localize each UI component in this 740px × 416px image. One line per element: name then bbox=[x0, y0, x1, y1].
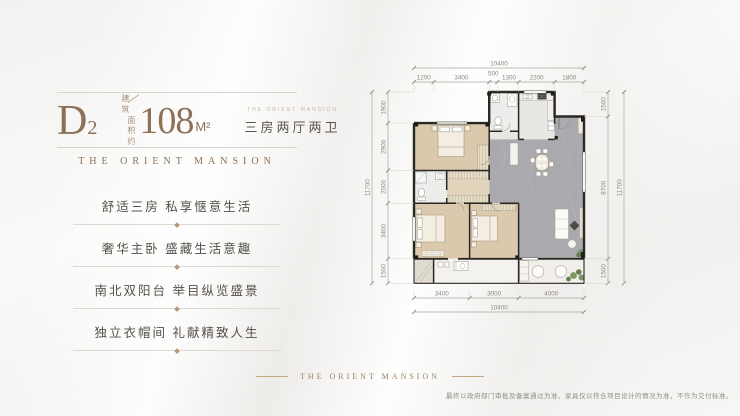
unit-code-number: 2 bbox=[87, 117, 97, 139]
area-value: 108 bbox=[139, 102, 193, 140]
selling-points: 舒适三房 私享惬意生活 奢华主卧 盛藏生活意趣 南北双阳台 举目纵览盛景 独立衣… bbox=[67, 196, 287, 364]
dim-left-4: 3400 bbox=[381, 224, 388, 239]
area-label-line2: 面积约 bbox=[121, 116, 136, 148]
dim-top-4: 1300 bbox=[502, 75, 517, 82]
area-label: 建筑 面积约 bbox=[121, 94, 136, 148]
layout-type-badge: THE ORIENT MANSION 三房两厅两卫 bbox=[245, 107, 341, 136]
dim-left-1: 1900 bbox=[381, 100, 388, 115]
dim-top-3: 500 bbox=[488, 71, 499, 78]
plan-header: D2 建筑 面积约 108 M² THE ORIENT MANSION 三房两厅… bbox=[57, 96, 301, 146]
dimension-top: 10400 1200 3400 500 1300 2200 1800 bbox=[412, 61, 586, 93]
floor-plan: 10400 1200 3400 500 1300 2200 1800 11700… bbox=[352, 52, 648, 328]
dim-top-5: 2200 bbox=[530, 75, 545, 82]
dim-top-total: 10400 bbox=[490, 61, 508, 68]
selling-point: 独立衣帽间 礼献精致人生 bbox=[67, 322, 287, 341]
footer-line-left bbox=[256, 376, 288, 377]
dim-left-5: 1500 bbox=[381, 264, 388, 279]
unit-code: D2 bbox=[57, 100, 97, 142]
walkin-closet-wardrobe2 bbox=[447, 196, 488, 203]
dim-right-1: 1500 bbox=[601, 97, 608, 112]
header-top-rule bbox=[57, 92, 297, 93]
footer-brand-text: THE ORIENT MANSION bbox=[300, 372, 440, 381]
selling-point: 南北双阳台 举目纵览盛景 bbox=[67, 280, 287, 299]
dim-top-1: 1200 bbox=[417, 75, 432, 82]
master-window bbox=[413, 217, 415, 241]
living-window bbox=[583, 152, 585, 192]
hall-cabinet bbox=[510, 143, 518, 165]
dim-bottom-total: 10400 bbox=[490, 305, 508, 312]
dimension-left: 11700 1900 2900 2000 3400 1500 bbox=[365, 90, 415, 285]
dim-top-6: 1800 bbox=[562, 75, 577, 82]
dim-left-2: 2900 bbox=[381, 139, 388, 154]
point-divider bbox=[73, 308, 281, 309]
dim-right-3: 1500 bbox=[601, 264, 608, 279]
dim-top-2: 3400 bbox=[454, 75, 469, 82]
point-divider bbox=[73, 266, 281, 267]
footer-brand: THE ORIENT MANSION bbox=[0, 372, 740, 381]
poster-canvas: D2 建筑 面积约 108 M² THE ORIENT MANSION 三房两厅… bbox=[0, 0, 740, 416]
dimension-right: 1500 8700 1500 11700 bbox=[584, 90, 626, 285]
badge-caption: THE ORIENT MANSION bbox=[247, 107, 338, 113]
dim-right-2: 8700 bbox=[601, 180, 608, 195]
dimension-bottom: 3400 3000 4000 10400 bbox=[412, 290, 586, 314]
kitchen-window bbox=[524, 91, 546, 93]
dim-bottom-2: 3000 bbox=[487, 291, 502, 298]
area-unit: M² bbox=[195, 119, 210, 134]
selling-point: 舒适三房 私享惬意生活 bbox=[67, 196, 287, 215]
selling-point: 奢华主卧 盛藏生活意趣 bbox=[67, 238, 287, 257]
brand-title: THE ORIENT MANSION bbox=[47, 156, 307, 167]
point-divider bbox=[73, 350, 281, 351]
area-label-line1: 建筑 bbox=[121, 94, 130, 114]
badge-text: 三房两厅两卫 bbox=[245, 117, 341, 136]
dim-left-3: 2000 bbox=[381, 179, 388, 194]
dim-left-total: 11700 bbox=[365, 179, 372, 197]
footer-line-right bbox=[452, 376, 484, 377]
bath-threshold bbox=[489, 131, 518, 139]
balcony-slider bbox=[522, 258, 538, 260]
dim-bottom-1: 3400 bbox=[435, 291, 450, 298]
point-divider bbox=[73, 224, 281, 225]
dim-bottom-3: 4000 bbox=[544, 291, 559, 298]
walkin-closet-wardrobe bbox=[447, 171, 488, 179]
unit-code-letter: D bbox=[57, 98, 87, 144]
header-bottom-rule bbox=[57, 147, 297, 148]
dim-right-total: 11700 bbox=[617, 179, 624, 197]
disclaimer-text: 最终以政府部门审批及备案通过为准，家具仅以符合项目设计的情况为准，不作为交付标准… bbox=[446, 390, 733, 400]
